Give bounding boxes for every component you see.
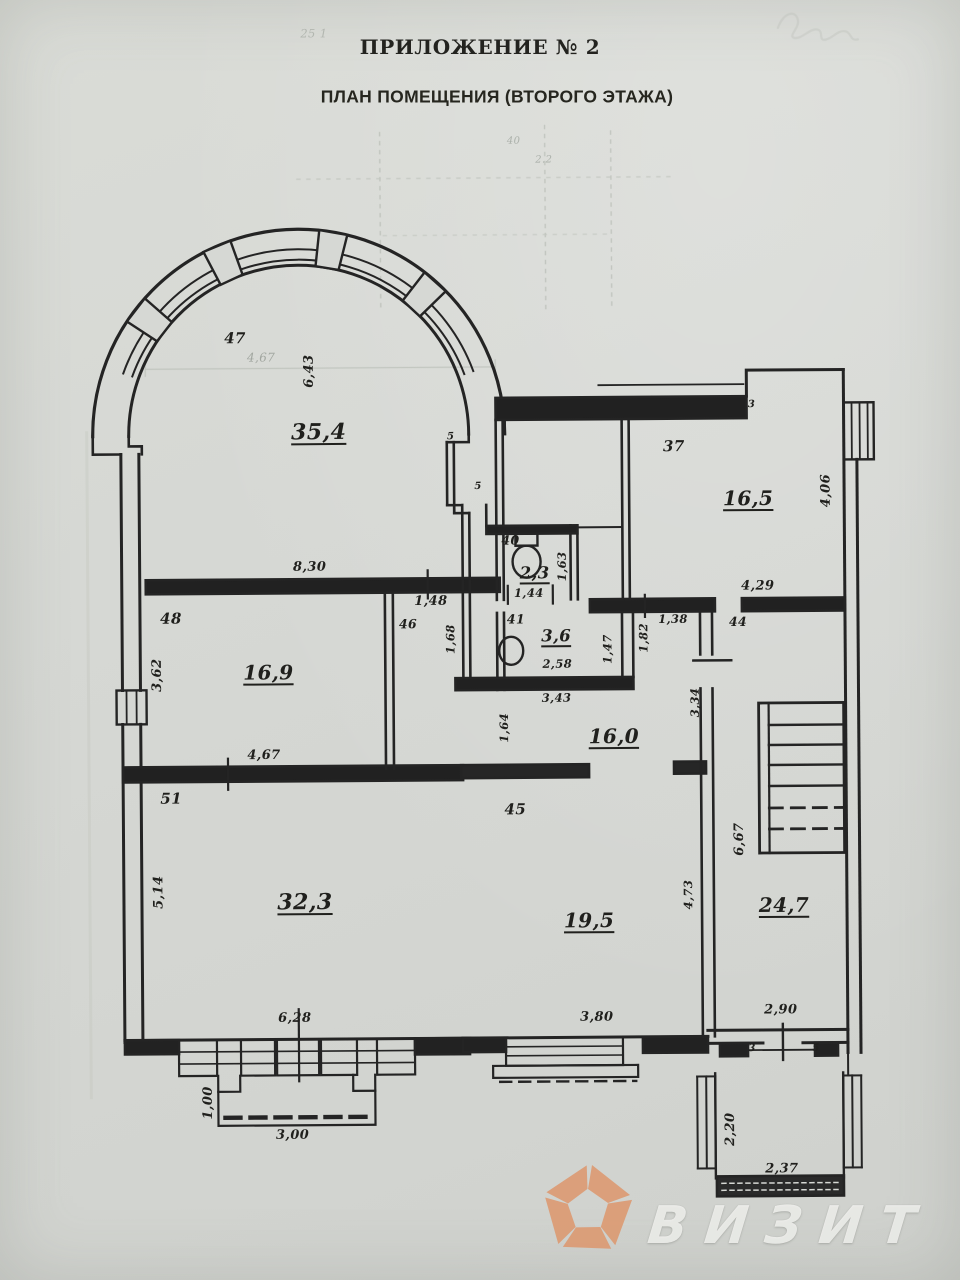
dim-room45-height: 4,73 (683, 880, 695, 910)
dim-room48-top-width: 8,30 (293, 561, 326, 574)
dim-balcony-left-height: 1,00 (202, 1086, 215, 1119)
room-48-area: 16,9 (243, 662, 293, 682)
stairwell-area: 24,7 (759, 895, 809, 915)
room-37-area: 16,5 (723, 488, 773, 508)
dim-hall46-height: 1,68 (445, 624, 457, 654)
dim-room51-width: 6,28 (278, 1012, 311, 1025)
room-44-number: 44 (729, 616, 747, 629)
bleed-note-b: 2.2 (535, 155, 552, 165)
room-45-area: 19,5 (564, 910, 614, 930)
step-dim-d: 3 (748, 1044, 755, 1054)
step-dim-a: 5 (447, 432, 454, 442)
corridor-area: 16,0 (589, 726, 639, 746)
room-48-number: 48 (160, 612, 182, 627)
room-51-area: 32,3 (277, 891, 332, 913)
dim-stair-width: 2,90 (764, 1003, 797, 1016)
room-45-number: 45 (504, 802, 526, 817)
dim-rotunda-height: 6,43 (303, 355, 316, 388)
step-dim-c: 3 (748, 400, 755, 410)
dim-corridor-d3: 3,34 (690, 688, 702, 718)
room-47-area: 35,4 (291, 421, 346, 443)
step-dim-e: 5 (812, 1044, 819, 1054)
dim-room37-width: 4,29 (741, 579, 774, 592)
room-47-number: 47 (224, 331, 246, 346)
plan-labels: 4735,46,434,673716,54,064,29402,31,441,6… (0, 0, 960, 1280)
room-41-area: 3,6 (541, 628, 571, 645)
dim-wc41-width-outer: 3,43 (542, 693, 572, 705)
pencil-note: 25 1 (300, 28, 327, 40)
room-46-number: 46 (399, 618, 417, 631)
bleed-note-a: 40 (507, 137, 521, 147)
room-40-number: 40 (501, 534, 519, 547)
dim-room45-width: 3,80 (580, 1011, 613, 1024)
scanned-floor-plan-page: ПРИЛОЖЕНИЕ № 2 ПЛАН ПОМЕЩЕНИЯ (ВТОРОГО Э… (0, 0, 960, 1280)
dim-balcony-left-width: 3,00 (276, 1129, 309, 1142)
room-41-number: 41 (507, 613, 525, 626)
dim-rotunda-width-faint: 4,67 (247, 351, 275, 363)
room-37-number: 37 (663, 439, 685, 454)
dim-hall46-width: 1,48 (414, 595, 447, 608)
dim-wc40-height: 1,63 (557, 552, 569, 582)
dim-wc41-width: 2,58 (542, 659, 572, 671)
dim-stair-height: 6,67 (733, 823, 746, 856)
dim-wc41-height: 1,47 (602, 634, 614, 664)
dim-corridor-height: 1,64 (499, 713, 511, 743)
dim-room37-height: 4,06 (819, 474, 832, 507)
step-dim-b: 5 (474, 482, 481, 492)
dim-balcony-right-width: 2,37 (765, 1162, 798, 1175)
dim-corridor-d2: 1,82 (638, 623, 650, 653)
dim-corridor-d1: 1,38 (658, 614, 688, 626)
dim-room51-height: 5,14 (152, 876, 165, 909)
dim-balcony-right-height: 2,20 (724, 1113, 737, 1146)
dim-room48-height: 3,62 (151, 659, 164, 692)
dim-room48-width: 4,67 (247, 749, 280, 762)
room-40-area: 2,3 (520, 565, 550, 582)
room-51-number: 51 (160, 792, 182, 807)
floor-plan-layer: 4735,46,434,673716,54,064,29402,31,441,6… (0, 0, 960, 1280)
dim-wc40-width: 1,44 (514, 588, 544, 600)
